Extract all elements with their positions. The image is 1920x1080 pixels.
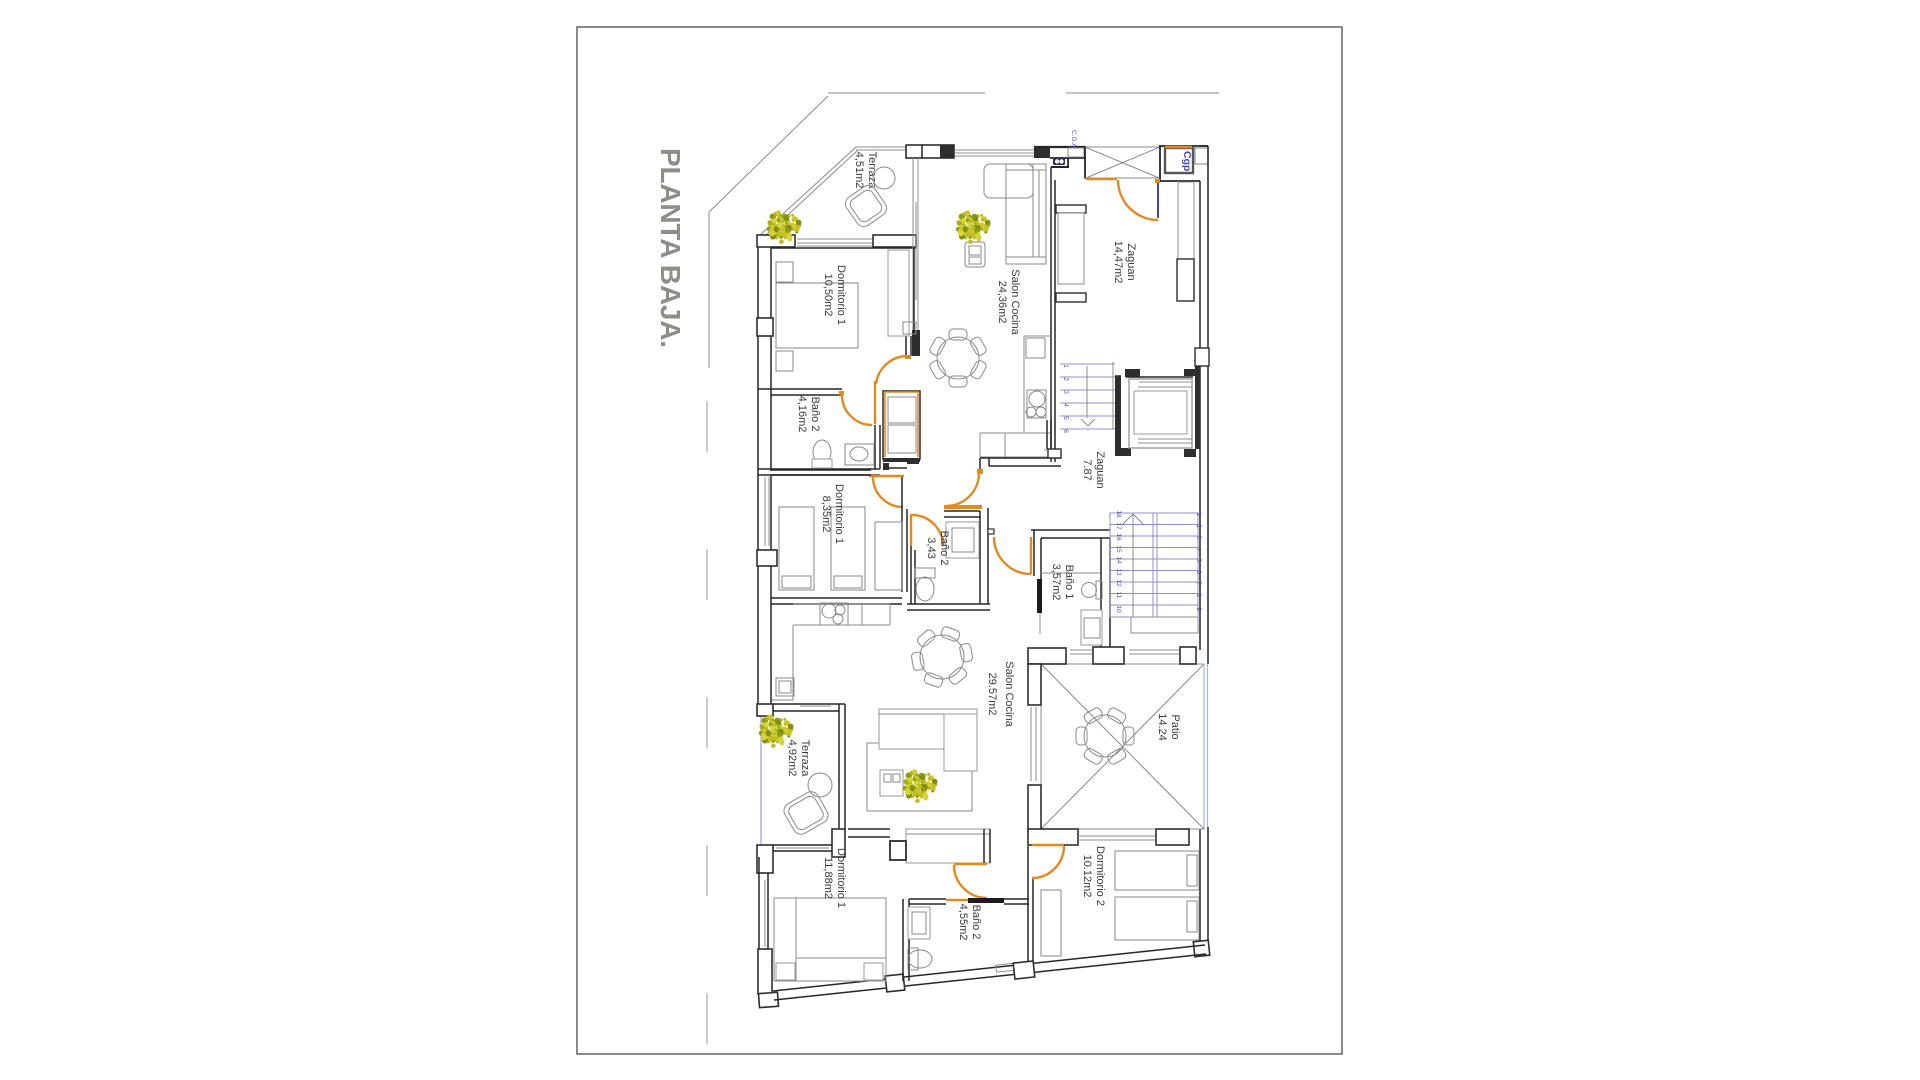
svg-text:15: 15 [1115,545,1122,553]
svg-text:4: 4 [1195,547,1202,551]
svg-text:12: 12 [1115,579,1122,587]
svg-text:Baño 2: Baño 2 [970,905,982,940]
svg-text:2: 2 [1195,524,1202,528]
svg-text:11,88m2: 11,88m2 [822,857,834,899]
svg-text:14: 14 [1115,556,1122,564]
svg-text:Baño 1: Baño 1 [1063,565,1075,600]
svg-text:Dormitorio 1: Dormitorio 1 [835,848,847,908]
svg-text:Patio: Patio [1169,714,1181,739]
svg-text:Baño 2: Baño 2 [809,397,821,432]
svg-text:3: 3 [1195,535,1202,539]
svg-text:29.57m2: 29.57m2 [986,673,998,716]
svg-text:Zaguan: Zaguan [1094,451,1106,488]
svg-text:4,92m2: 4,92m2 [786,740,798,777]
svg-text:24,36m2: 24,36m2 [996,281,1008,324]
svg-text:Terraza: Terraza [799,740,811,778]
svg-text:Dormitorio 2: Dormitorio 2 [1094,846,1106,906]
svg-text:Zaguan: Zaguan [1125,243,1137,280]
svg-text:6: 6 [1195,570,1202,574]
svg-text:4: 4 [1062,403,1069,407]
svg-text:10.12m2: 10.12m2 [1081,855,1093,898]
svg-text:8,35m2: 8,35m2 [820,496,832,533]
svg-text:Dormitorio 1: Dormitorio 1 [833,484,845,544]
svg-text:11: 11 [1115,592,1122,599]
svg-text:Baño 2: Baño 2 [938,531,950,566]
svg-text:3,57m2: 3,57m2 [1050,564,1062,601]
svg-text:3: 3 [1062,390,1069,394]
svg-text:4,51m2: 4,51m2 [853,152,865,189]
svg-text:18: 18 [1115,510,1122,518]
svg-text:Cgp: Cgp [1181,151,1193,171]
svg-text:8: 8 [1195,593,1202,597]
svg-text:PLANTA BAJA.: PLANTA BAJA. [655,148,686,348]
svg-text:3,43: 3,43 [925,537,937,558]
svg-text:5: 5 [1062,416,1069,420]
svg-text:17: 17 [1115,522,1122,530]
svg-text:10,50m2: 10,50m2 [822,274,834,317]
svg-text:4,16m2: 4,16m2 [796,396,808,433]
svg-text:Dormitorio 1: Dormitorio 1 [835,265,847,325]
svg-text:2: 2 [1062,377,1069,381]
svg-text:16: 16 [1115,533,1122,541]
svg-text:14,47m2: 14,47m2 [1112,241,1124,284]
svg-text:Salon Cocina: Salon Cocina [1003,661,1015,727]
svg-text:1: 1 [1195,512,1202,516]
svg-text:Salon Cocina: Salon Cocina [1009,269,1021,335]
svg-text:10: 10 [1115,605,1122,613]
svg-text:7.87: 7.87 [1081,459,1093,480]
svg-text:5: 5 [1195,558,1202,562]
svg-text:1: 1 [1062,364,1069,368]
svg-text:4,55m2: 4,55m2 [957,904,969,941]
svg-text:7: 7 [1195,581,1202,585]
svg-text:C.G.A: C.G.A [1070,130,1077,148]
svg-text:13: 13 [1115,568,1122,576]
svg-text:9: 9 [1195,607,1202,611]
svg-text:6: 6 [1062,429,1069,433]
svg-text:14.24: 14.24 [1156,713,1168,741]
